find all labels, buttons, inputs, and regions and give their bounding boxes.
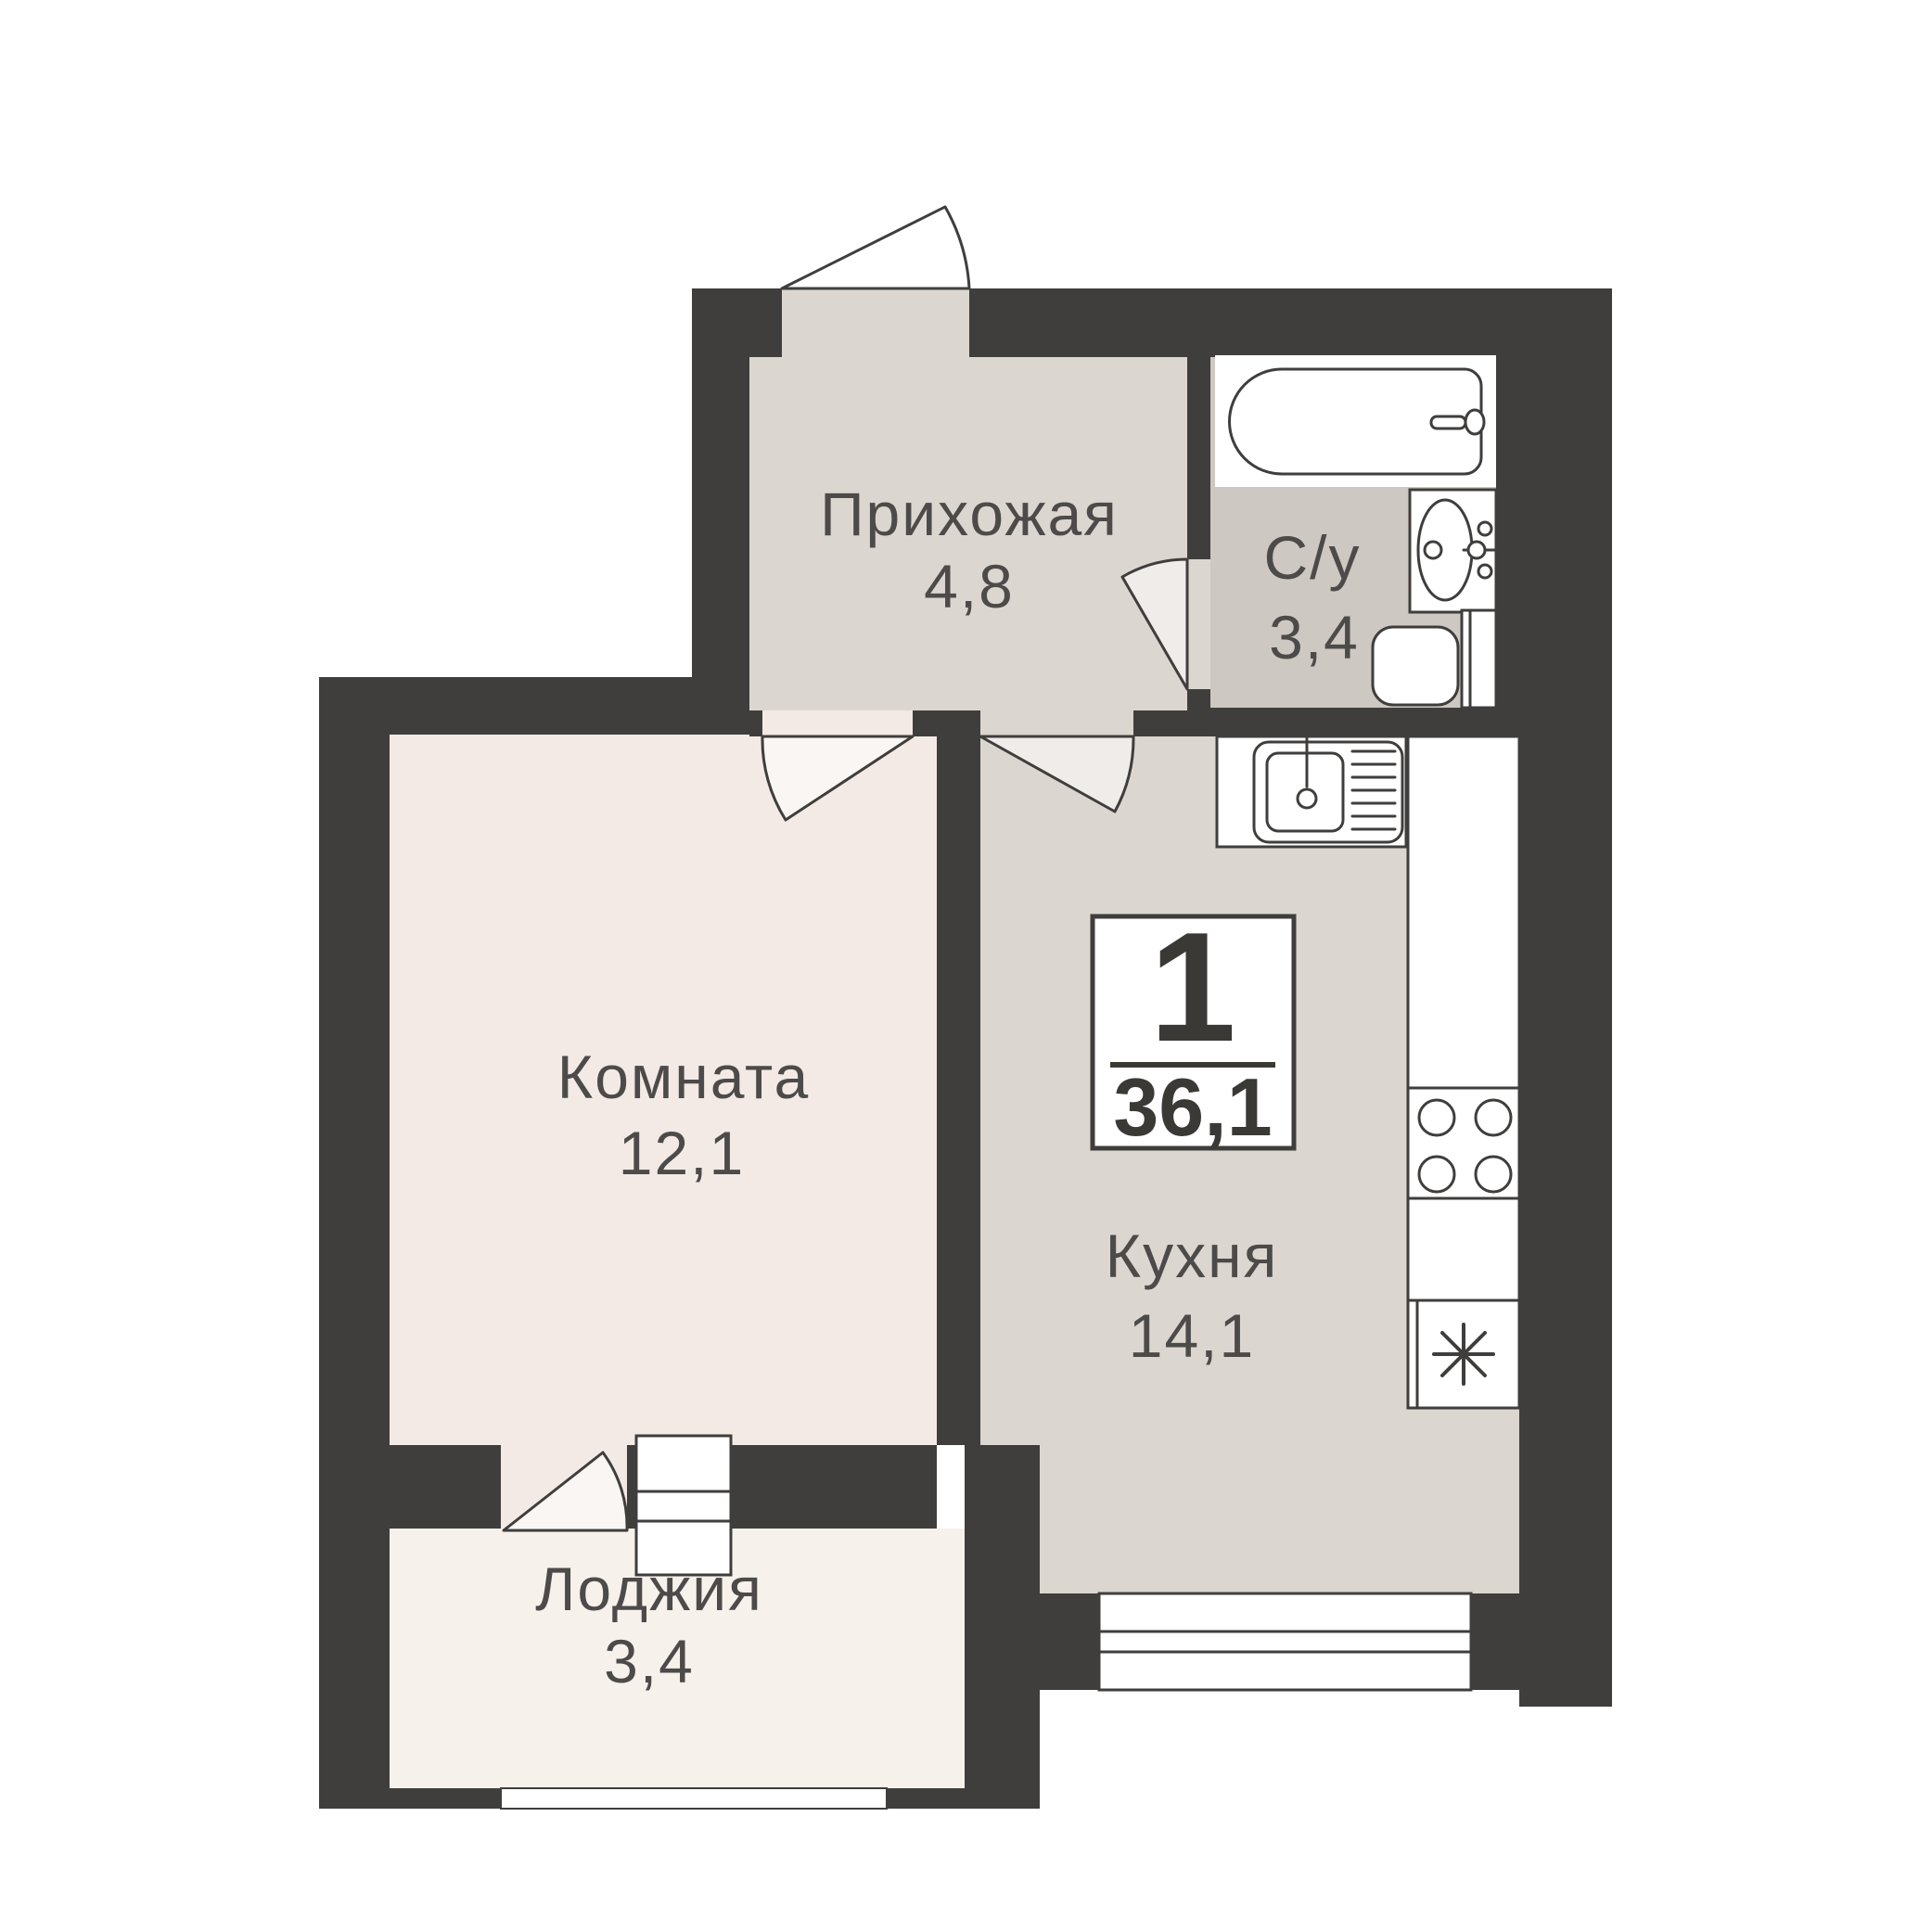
bathroom-sink-icon bbox=[1410, 490, 1496, 612]
hallway-area: 4,8 bbox=[924, 552, 1015, 621]
bathtub-icon bbox=[1215, 355, 1496, 487]
drainboard-lines bbox=[1352, 751, 1395, 829]
kitchen-counter bbox=[1408, 736, 1519, 1408]
living-room-area: 12,1 bbox=[619, 1119, 745, 1187]
bathroom-area: 3,4 bbox=[1269, 603, 1360, 672]
bathroom-label: С/у bbox=[1264, 523, 1362, 592]
living-room-label: Комната bbox=[557, 1043, 810, 1111]
floor-plan: 1 36,1 Прихожая 4,8 С/у 3,4 Комната 12,1… bbox=[0, 0, 1932, 1932]
hallway-label: Прихожая bbox=[820, 480, 1119, 548]
kitchen-label: Кухня bbox=[1106, 1222, 1279, 1290]
snowflake-icon bbox=[1434, 1324, 1493, 1384]
badge-total-area: 36,1 bbox=[1113, 1061, 1272, 1153]
kitchen-area: 14,1 bbox=[1129, 1301, 1255, 1370]
kitchen-sink-icon bbox=[1217, 736, 1406, 847]
loggia-window bbox=[501, 1788, 887, 1809]
apartment-badge: 1 36,1 bbox=[1093, 900, 1294, 1153]
loggia-label: Лоджия bbox=[535, 1555, 763, 1623]
loggia-area: 3,4 bbox=[604, 1627, 695, 1695]
badge-rooms-count: 1 bbox=[1149, 900, 1235, 1074]
kitchen-window bbox=[1099, 1593, 1471, 1690]
